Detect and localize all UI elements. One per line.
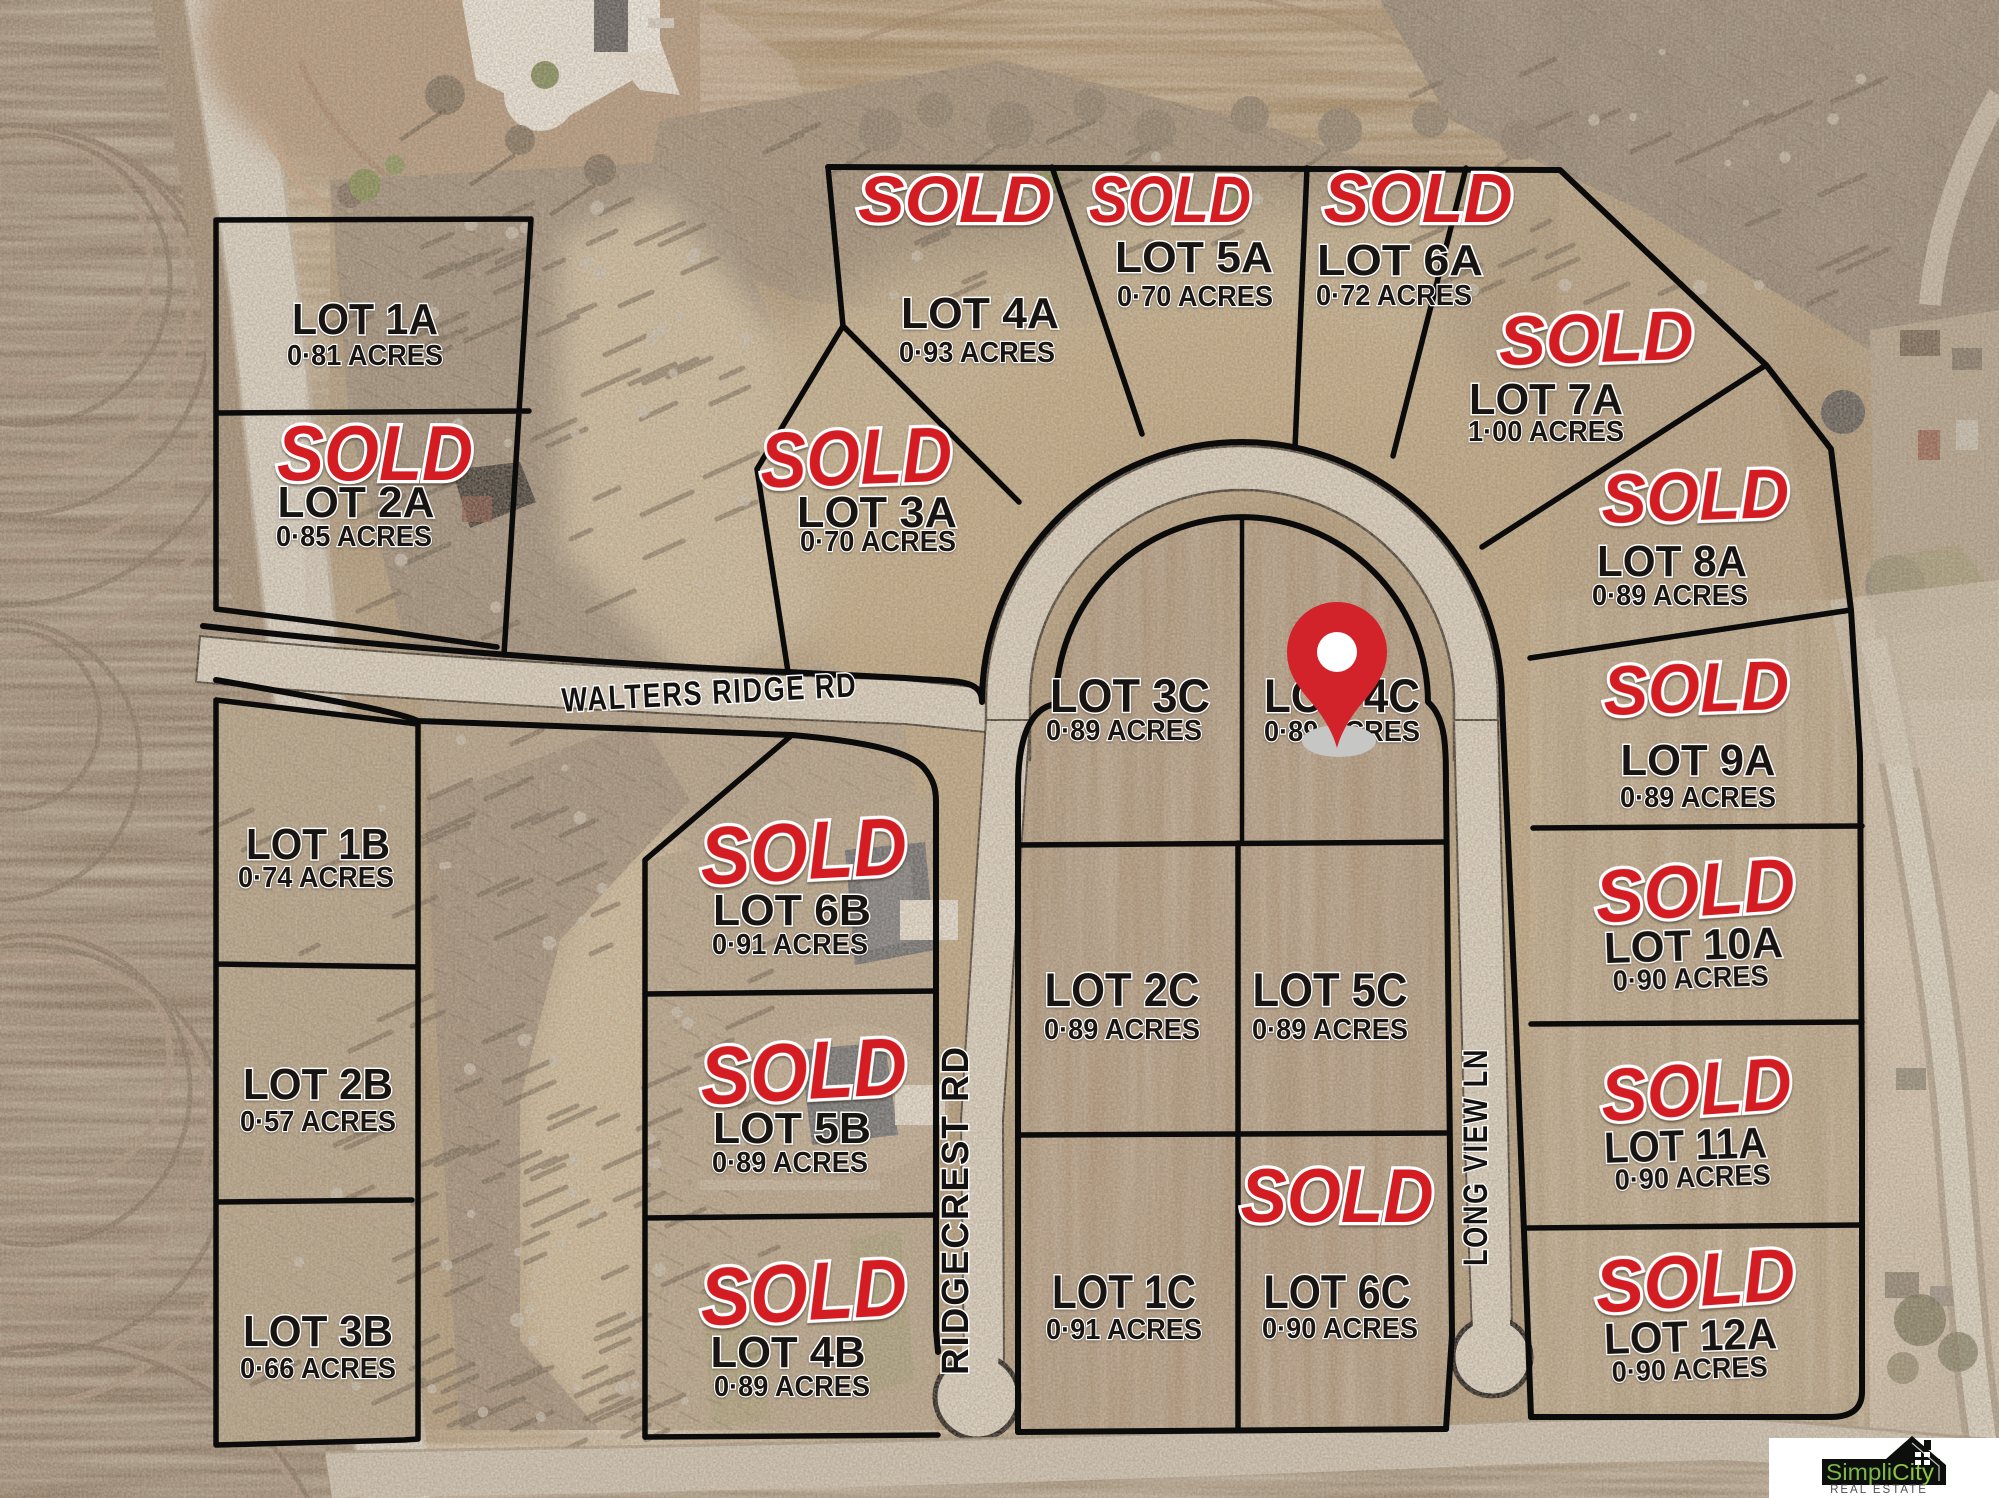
svg-text:0·70 ACRES: 0·70 ACRES <box>800 526 956 558</box>
svg-text:0·72 ACRES: 0·72 ACRES <box>1316 280 1472 312</box>
svg-text:LOT 1C: LOT 1C <box>1052 1265 1196 1318</box>
svg-text:SOLD: SOLD <box>1241 1154 1434 1239</box>
svg-text:0·89 ACRES: 0·89 ACRES <box>714 1371 870 1403</box>
svg-text:0·89 ACRES: 0·89 ACRES <box>1046 715 1202 747</box>
svg-text:0·89 ACRES: 0·89 ACRES <box>712 1147 868 1179</box>
svg-text:LOT 5A: LOT 5A <box>1115 233 1273 282</box>
svg-text:LOT 6C: LOT 6C <box>1264 1265 1411 1318</box>
svg-text:LOT 2B: LOT 2B <box>243 1060 393 1109</box>
svg-text:LOT 5C: LOT 5C <box>1253 963 1408 1016</box>
svg-text:0·91 ACRES: 0·91 ACRES <box>712 929 868 961</box>
svg-text:LOT 5B: LOT 5B <box>713 1104 871 1153</box>
svg-text:0·89 ACRES: 0·89 ACRES <box>1044 1014 1200 1046</box>
svg-text:0·89 ACRES: 0·89 ACRES <box>1592 580 1748 612</box>
svg-text:0·74 ACRES: 0·74 ACRES <box>238 862 394 894</box>
svg-text:0·90 ACRES: 0·90 ACRES <box>1614 1159 1771 1196</box>
svg-text:LOT 1A: LOT 1A <box>292 295 438 344</box>
svg-text:LOT 2C: LOT 2C <box>1045 963 1200 1016</box>
svg-text:SOLD: SOLD <box>1497 296 1695 381</box>
svg-text:0·90 ACRES: 0·90 ACRES <box>1612 960 1769 997</box>
svg-text:0·91 ACRES: 0·91 ACRES <box>1046 1314 1202 1346</box>
svg-text:0·93 ACRES: 0·93 ACRES <box>899 337 1055 369</box>
svg-text:SOLD: SOLD <box>1089 162 1251 236</box>
svg-text:SOLD: SOLD <box>1324 159 1513 237</box>
svg-text:0·89 ACRES: 0·89 ACRES <box>1620 782 1776 814</box>
svg-text:LOT 4A: LOT 4A <box>901 289 1059 338</box>
svg-text:0·66 ACRES: 0·66 ACRES <box>240 1353 396 1385</box>
svg-text:SOLD: SOLD <box>1600 454 1791 539</box>
svg-text:SimpliCity: SimpliCity <box>1826 1459 1935 1485</box>
svg-text:0·85 ACRES: 0·85 ACRES <box>276 521 432 553</box>
svg-text:LOT 8A: LOT 8A <box>1597 537 1747 586</box>
svg-text:LOT 4B: LOT 4B <box>711 1328 866 1377</box>
svg-text:0·89 ACRES: 0·89 ACRES <box>1252 1014 1408 1046</box>
svg-text:0·90 ACRES: 0·90 ACRES <box>1262 1313 1418 1345</box>
svg-text:LONG VIEW LN: LONG VIEW LN <box>1457 1048 1495 1266</box>
svg-text:SOLD: SOLD <box>858 162 1052 236</box>
svg-text:0·81 ACRES: 0·81 ACRES <box>287 340 443 372</box>
svg-text:LOT 6A: LOT 6A <box>1317 236 1483 285</box>
svg-text:0·57 ACRES: 0·57 ACRES <box>240 1106 396 1138</box>
svg-text:SOLD: SOLD <box>1602 646 1791 730</box>
svg-text:LOT 2A: LOT 2A <box>278 478 435 527</box>
svg-text:0·70 ACRES: 0·70 ACRES <box>1117 281 1273 313</box>
svg-text:LOT 3B: LOT 3B <box>243 1307 393 1356</box>
svg-text:LOT 6B: LOT 6B <box>713 886 871 935</box>
svg-text:1·00 ACRES: 1·00 ACRES <box>1468 416 1624 448</box>
svg-text:REAL ESTATE: REAL ESTATE <box>1830 1484 1928 1496</box>
svg-text:LOT 9A: LOT 9A <box>1621 736 1776 785</box>
svg-text:RIDGECREST RD: RIDGECREST RD <box>935 1045 977 1375</box>
svg-text:0·90 ACRES: 0·90 ACRES <box>1611 1351 1768 1388</box>
